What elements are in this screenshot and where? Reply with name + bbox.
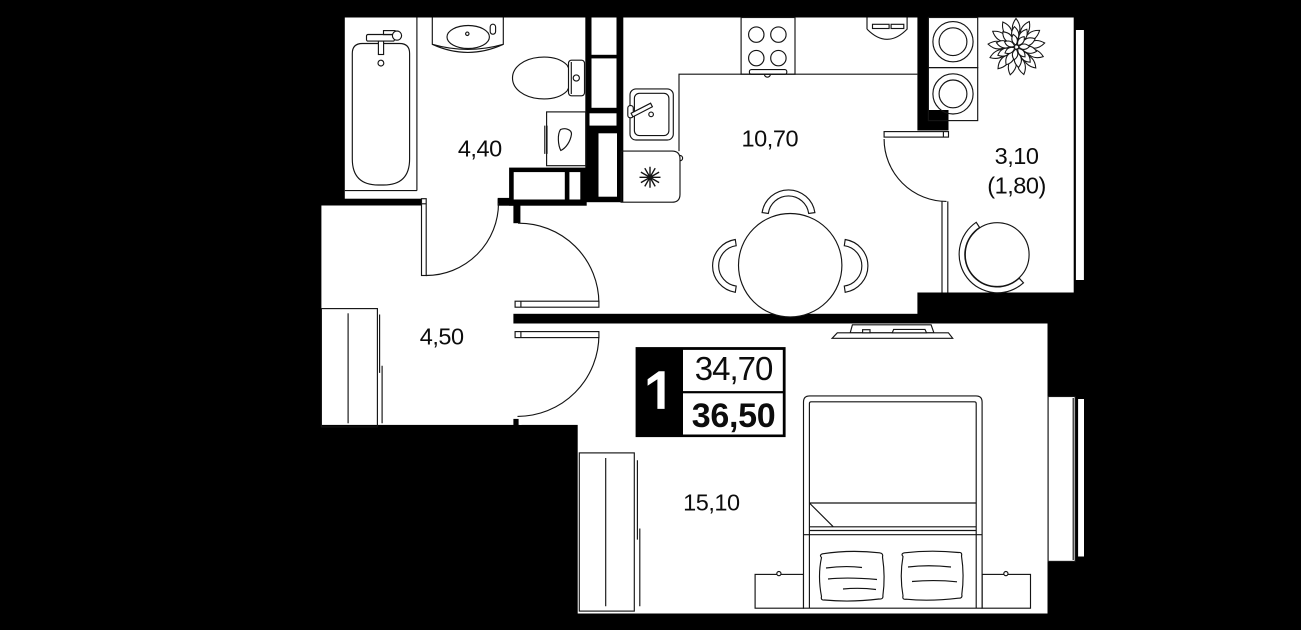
svg-text:4,50: 4,50 — [420, 324, 464, 350]
svg-text:(1,80): (1,80) — [987, 173, 1046, 199]
svg-text:15,10: 15,10 — [683, 489, 740, 515]
svg-text:3,10: 3,10 — [995, 143, 1039, 169]
svg-text:34,70: 34,70 — [695, 350, 773, 387]
svg-text:10,70: 10,70 — [742, 126, 799, 152]
svg-text:4,40: 4,40 — [458, 136, 502, 162]
svg-text:36,50: 36,50 — [692, 397, 776, 435]
